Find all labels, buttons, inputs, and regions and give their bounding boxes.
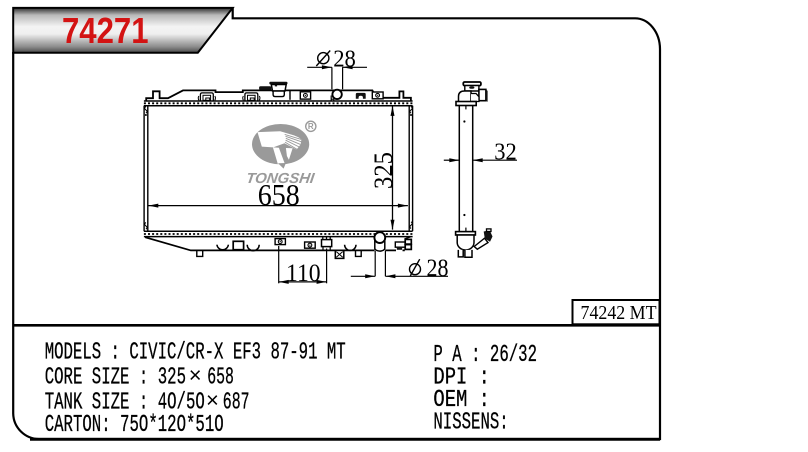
svg-text:×: × <box>189 362 202 387</box>
svg-text:28: 28 <box>427 255 449 282</box>
svg-text:28: 28 <box>333 47 356 73</box>
svg-text:110: 110 <box>286 260 321 287</box>
svg-text:×: × <box>206 387 219 412</box>
svg-text:32: 32 <box>494 139 517 166</box>
svg-text:R: R <box>308 122 314 131</box>
svg-text:CARTON: 75O*12O*51O: CARTON: 75O*12O*51O <box>45 412 224 439</box>
svg-text:CORE SIZE : 325: CORE SIZE : 325 <box>45 364 186 391</box>
svg-text:325: 325 <box>369 152 398 189</box>
svg-text:74271: 74271 <box>62 10 149 51</box>
svg-text:NISSENS:: NISSENS: <box>433 410 508 437</box>
svg-text:74242 MT: 74242 MT <box>581 302 657 324</box>
svg-text:687: 687 <box>223 390 250 417</box>
svg-text:658: 658 <box>258 178 300 212</box>
